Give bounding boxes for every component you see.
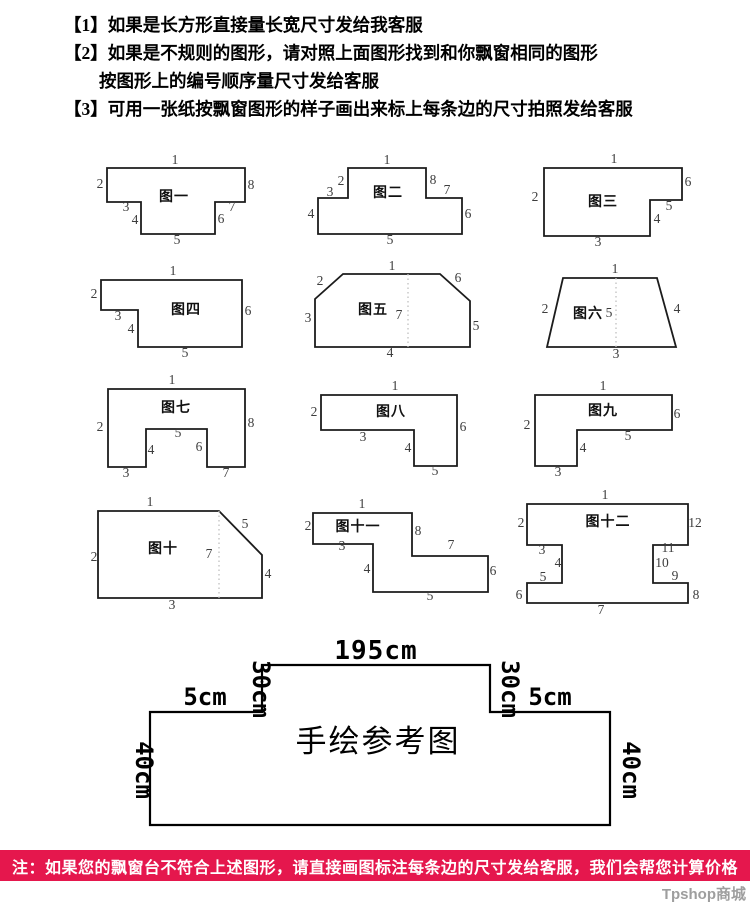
footer-note-text: 注：如果您的飘窗台不符合上述图形，请直接画图标注每条边的尺寸发给客服，我们会帮您…: [12, 854, 738, 878]
figure-6-edge-label-1: 1: [612, 261, 619, 276]
figure-11-edge-label-5: 5: [427, 588, 434, 603]
figure-11-edge-label-2: 2: [305, 518, 312, 533]
hand-drawn-right-drop-dim: 30cm: [496, 660, 524, 718]
figure-2-edge-label-8: 8: [430, 172, 437, 187]
figure-12-edge-label-6: 6: [516, 587, 523, 602]
figure-1-title: 图一: [159, 189, 189, 205]
figure-1-edge-label-4: 4: [132, 212, 139, 227]
figure-5-outline: [315, 274, 470, 347]
footer-note-banner: 注：如果您的飘窗台不符合上述图形，请直接画图标注每条边的尺寸发给客服，我们会帮您…: [0, 850, 750, 881]
hand-drawn-left-side-dim: 40cm: [130, 741, 158, 799]
figure-7-edge-label-8: 8: [248, 415, 255, 430]
figure-12-edge-label-1: 1: [602, 487, 609, 502]
figure-4-edge-label-6: 6: [245, 303, 252, 318]
figure-6-edge-label-3: 3: [613, 346, 620, 361]
figure-10-edge-label-4: 4: [265, 566, 272, 581]
hand-drawn-top-dim: 195cm: [334, 636, 417, 666]
figure-3-edge-label-5: 5: [666, 198, 673, 213]
figure-4-diagram: 图四123456: [88, 262, 258, 362]
page: 【1】如果是长方形直接量长宽尺寸发给我客服 【2】如果是不规则的图形，请对照上面…: [0, 0, 750, 902]
figure-9-edge-label-1: 1: [600, 378, 607, 393]
figure-8-edge-label-6: 6: [460, 419, 467, 434]
figure-12-edge-label-7: 7: [598, 602, 605, 617]
figure-8-diagram: 图八123456: [305, 375, 485, 480]
figure-2-edge-label-2: 2: [338, 173, 345, 188]
figure-12-edge-label-2: 2: [518, 515, 525, 530]
figure-3-edge-label-3: 3: [595, 234, 602, 249]
figure-4-title: 图四: [171, 302, 201, 318]
figure-12-edge-label-3: 3: [539, 542, 546, 557]
figure-10-edge-label-3: 3: [169, 597, 176, 612]
figure-3-edge-label-2: 2: [532, 189, 539, 204]
instructions-block: 【1】如果是长方形直接量长宽尺寸发给我客服 【2】如果是不规则的图形，请对照上面…: [64, 16, 704, 128]
figure-5-edge-label-3: 3: [305, 310, 312, 325]
figure-4-edge-label-4: 4: [128, 321, 135, 336]
watermark: Tpshop商城: [662, 883, 746, 902]
figure-9-edge-label-2: 2: [524, 417, 531, 432]
figure-2-diagram: 图二12345678: [308, 150, 480, 245]
figure-5-edge-label-6: 6: [455, 270, 462, 285]
figure-2-edge-label-5: 5: [387, 232, 394, 247]
figure-12-edge-label-9: 9: [672, 568, 679, 583]
figure-1-edge-label-5: 5: [174, 232, 181, 247]
figure-9-edge-label-5: 5: [625, 428, 632, 443]
figure-10-edge-label-7: 7: [206, 546, 213, 561]
figure-7-edge-label-2: 2: [97, 419, 104, 434]
figure-11-edge-label-1: 1: [359, 496, 366, 511]
hand-drawn-figure: 195cm 30cm 30cm 5cm 5cm 40cm 40cm 手绘参考图: [120, 640, 660, 835]
figure-2-edge-label-1: 1: [384, 152, 391, 167]
figure-1-edge-label-8: 8: [248, 177, 255, 192]
figure-3-diagram: 图三123456: [530, 150, 695, 245]
figure-11-edge-label-8: 8: [415, 523, 422, 538]
figure-9-edge-label-4: 4: [580, 440, 587, 455]
figure-4-edge-label-2: 2: [91, 286, 98, 301]
figure-12-title: 图十二: [586, 513, 631, 530]
figure-7-edge-label-7: 7: [223, 465, 230, 480]
figure-2-edge-label-6: 6: [465, 206, 472, 221]
figure-5-edge-label-2: 2: [317, 273, 324, 288]
figure-11-edge-label-6: 6: [490, 563, 497, 578]
figure-5-edge-label-1: 1: [389, 258, 396, 273]
figure-8-edge-label-3: 3: [360, 429, 367, 444]
figure-7-edge-label-3: 3: [123, 465, 130, 480]
figure-3-edge-label-6: 6: [685, 174, 692, 189]
figure-11-title: 图十一: [336, 518, 381, 535]
figure-5-edge-label-4: 4: [387, 345, 394, 360]
figure-3-edge-label-1: 1: [611, 151, 618, 166]
figure-3-edge-label-4: 4: [654, 211, 661, 226]
figure-4-edge-label-1: 1: [170, 263, 177, 278]
figure-5-edge-label-7: 7: [396, 307, 403, 322]
instruction-line-2: 【2】如果是不规则的图形，请对照上面图形找到和你飘窗相同的图形: [64, 44, 704, 63]
figure-10-title: 图十: [148, 540, 178, 557]
figure-6-diagram: 图六12345: [525, 262, 690, 362]
figure-6-edge-label-4: 4: [674, 301, 681, 316]
figure-1-edge-label-2: 2: [97, 176, 104, 191]
figure-9-diagram: 图九123456: [518, 375, 688, 480]
figure-1-edge-label-7: 7: [229, 199, 236, 214]
figure-8-edge-label-2: 2: [311, 404, 318, 419]
hand-drawn-left-ledge-dim: 5cm: [183, 683, 226, 711]
figure-2-edge-label-3: 3: [327, 184, 334, 199]
figure-12-edge-label-12: 12: [688, 515, 702, 530]
hand-drawn-left-drop-dim: 30cm: [247, 660, 275, 718]
figure-8-edge-label-4: 4: [405, 440, 412, 455]
figure-12-edge-label-11: 11: [662, 540, 675, 555]
figure-11-edge-label-3: 3: [339, 538, 346, 553]
figure-10-outline: [98, 511, 262, 598]
figure-7-edge-label-4: 4: [148, 442, 155, 457]
figure-1-edge-label-3: 3: [123, 199, 130, 214]
figure-3-title: 图三: [588, 194, 618, 210]
figure-1-edge-label-6: 6: [218, 211, 225, 226]
instruction-line-3: 【3】可用一张纸按飘窗图形的样子画出来标上每条边的尺寸拍照发给客服: [64, 100, 704, 119]
figure-10-diagram: 图十123457: [90, 495, 290, 620]
figure-6-edge-label-5: 5: [606, 305, 613, 320]
figure-4-edge-label-3: 3: [115, 308, 122, 323]
figure-12-edge-label-10: 10: [655, 555, 669, 570]
figure-6-edge-label-2: 2: [542, 301, 549, 316]
figure-6-title: 图六: [573, 305, 603, 322]
figure-12-edge-label-4: 4: [555, 555, 562, 570]
figure-11-diagram: 图十一12345678: [300, 495, 505, 615]
figure-10-edge-label-1: 1: [147, 494, 154, 509]
figure-10-edge-label-5: 5: [242, 516, 249, 531]
instruction-line-2-continued: 按图形上的编号顺序量尺寸发给客服: [99, 72, 704, 91]
figure-7-title: 图七: [161, 400, 191, 416]
figure-1-edge-label-1: 1: [172, 152, 179, 167]
figure-11-edge-label-4: 4: [364, 561, 371, 576]
figure-12-edge-label-8: 8: [693, 587, 700, 602]
hand-drawn-right-ledge-dim: 5cm: [528, 683, 571, 711]
figure-5-title: 图五: [358, 302, 388, 318]
figure-12-edge-label-5: 5: [540, 569, 547, 584]
figure-8-edge-label-1: 1: [392, 378, 399, 393]
figure-4-edge-label-5: 5: [182, 345, 189, 360]
figure-2-edge-label-4: 4: [308, 206, 315, 221]
figure-8-title: 图八: [376, 404, 406, 420]
figure-11-edge-label-7: 7: [448, 537, 455, 552]
figure-12-diagram: 图十二123456789101112: [510, 487, 710, 627]
figure-10-edge-label-2: 2: [91, 549, 98, 564]
figure-9-title: 图九: [588, 403, 618, 419]
figure-9-edge-label-3: 3: [555, 464, 562, 479]
figure-1-diagram: 图一12345678: [95, 150, 260, 245]
hand-drawn-title: 手绘参考图: [296, 724, 461, 759]
figure-7-diagram: 图七12345678: [95, 375, 260, 480]
figure-7-edge-label-1: 1: [169, 372, 176, 387]
figure-5-diagram: 图五1234567: [300, 262, 485, 362]
figure-7-edge-label-5: 5: [175, 425, 182, 440]
figure-9-edge-label-6: 6: [674, 406, 681, 421]
figure-8-edge-label-5: 5: [432, 463, 439, 478]
instruction-line-1: 【1】如果是长方形直接量长宽尺寸发给我客服: [64, 16, 704, 35]
figure-2-title: 图二: [373, 185, 403, 201]
figure-7-edge-label-6: 6: [196, 439, 203, 454]
figure-5-edge-label-5: 5: [473, 318, 480, 333]
figure-2-edge-label-7: 7: [444, 182, 451, 197]
hand-drawn-right-side-dim: 40cm: [617, 741, 645, 799]
